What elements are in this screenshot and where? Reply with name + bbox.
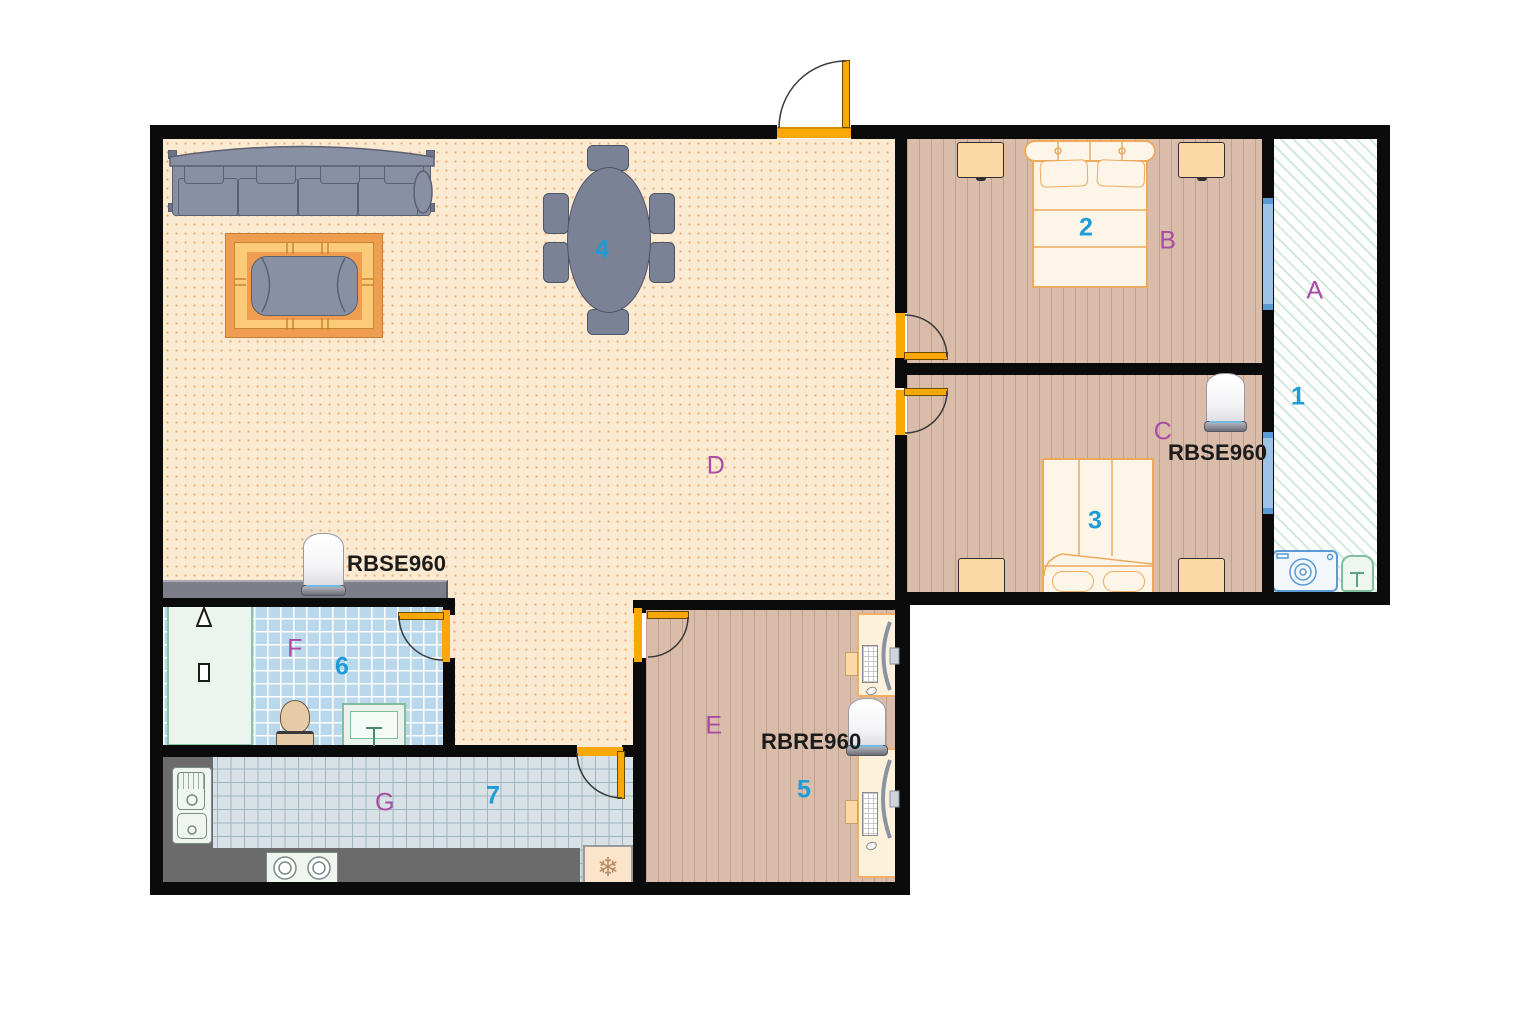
kitchen-door-leaf[interactable] [617, 751, 625, 799]
kitchen-sink-basin [177, 813, 207, 839]
hallway-floor [450, 600, 640, 748]
keyboard-2 [862, 792, 878, 836]
bedroom-b-door-leaf[interactable] [904, 352, 948, 360]
wall-right [1377, 125, 1390, 605]
entry-door-arc [779, 61, 846, 128]
room-label-g: G [375, 789, 395, 818]
entry-door-leaf[interactable] [842, 60, 850, 128]
router-label-office: RBRE960 [761, 729, 861, 755]
entry-door-threshold[interactable] [777, 127, 851, 138]
bedroom-c-door-jamb[interactable] [896, 390, 905, 435]
coffee-table[interactable] [225, 233, 383, 338]
wall-bathroom-right-2 [443, 658, 455, 757]
room-number-1: 1 [1291, 383, 1305, 412]
snowflake-icon: ❄ [597, 852, 619, 882]
wall-top-left [150, 125, 777, 139]
dining-chair-right-1[interactable] [649, 193, 675, 234]
wall-living-bedrooms-1 [895, 139, 907, 313]
bathroom-sink-basin [350, 711, 398, 739]
room-number-2: 2 [1079, 214, 1093, 243]
wall-top-right [851, 125, 1390, 139]
balcony-sink[interactable] [1341, 555, 1374, 592]
coffee-table-cushion [251, 256, 358, 316]
room-label-d: D [707, 452, 726, 481]
bedroom-c-door-leaf[interactable] [904, 388, 948, 396]
sofa[interactable] [168, 142, 435, 220]
router-label-bedroom-c: RBSE960 [1168, 440, 1267, 466]
bed-b-pillow-right [1097, 159, 1146, 188]
nightstand-b-right[interactable] [1178, 142, 1225, 178]
wall-bathroom-top [150, 598, 455, 607]
office-chair-2[interactable] [845, 800, 858, 824]
room-label-a: A [1306, 277, 1323, 306]
office-door-jamb[interactable] [634, 608, 642, 662]
router-label-living: RBSE960 [347, 551, 446, 577]
dining-chair-right-2[interactable] [649, 242, 675, 283]
floor-plan: ❄ [0, 0, 1534, 1011]
wall-living-bedrooms-3 [895, 435, 907, 592]
stove[interactable] [266, 852, 338, 885]
router-glow [306, 585, 340, 587]
fridge[interactable]: ❄ [583, 845, 633, 887]
dining-chair-left-1[interactable] [543, 193, 569, 234]
toilet-seat[interactable] [280, 700, 310, 733]
wall-kitchen-top-1 [150, 745, 577, 757]
balcony-floor [1274, 139, 1377, 592]
wall-office-left-2 [633, 658, 646, 882]
kitchen-sink[interactable] [172, 767, 212, 844]
nightstand-b-left[interactable] [957, 142, 1004, 178]
router-glow [1209, 421, 1242, 423]
wall-office-right [895, 592, 910, 895]
wall-bottom [150, 882, 910, 895]
wall-bottom-right-section [897, 592, 1390, 605]
router-bedroom-c-rbse960[interactable] [1206, 373, 1245, 432]
office-chair-1[interactable] [845, 652, 858, 676]
bathroom-sink[interactable] [342, 703, 406, 747]
room-label-f: F [287, 635, 303, 664]
bed-c-pillow-left [1052, 571, 1094, 592]
shower[interactable] [167, 604, 253, 746]
bed-b-headboard [1024, 140, 1156, 162]
office-door-leaf[interactable] [647, 611, 689, 619]
room-number-4: 4 [595, 236, 609, 265]
bathroom-door-leaf[interactable] [398, 612, 444, 620]
washing-machine[interactable] [1272, 550, 1338, 592]
nightstand-c-right[interactable] [1178, 558, 1225, 596]
kitchen-counter-bottom [163, 848, 580, 882]
bed-c-pillow-right [1103, 571, 1145, 592]
wall-left [150, 125, 163, 895]
kitchen-sink-drainboard [177, 772, 205, 810]
dining-chair-left-2[interactable] [543, 242, 569, 283]
router-living-rbse960[interactable] [303, 533, 344, 596]
sofa-pillow-3 [320, 156, 360, 184]
keyboard-1 [862, 645, 878, 683]
sofa-pillow-1 [184, 156, 224, 184]
room-number-3: 3 [1088, 507, 1102, 536]
bed-b-pillow-left [1040, 159, 1089, 188]
room-number-6: 6 [335, 653, 349, 682]
window-bedroom-b[interactable] [1263, 198, 1273, 310]
room-number-5: 5 [797, 776, 811, 805]
sofa-pillow-4 [384, 156, 424, 184]
wall-office-top [633, 600, 907, 610]
room-label-b: B [1159, 227, 1176, 256]
nightstand-c-left[interactable] [958, 558, 1005, 596]
room-label-e: E [705, 712, 722, 741]
sofa-pillow-2 [256, 156, 296, 184]
wall-living-bedrooms-2 [895, 358, 907, 388]
room-number-7: 7 [486, 782, 500, 811]
